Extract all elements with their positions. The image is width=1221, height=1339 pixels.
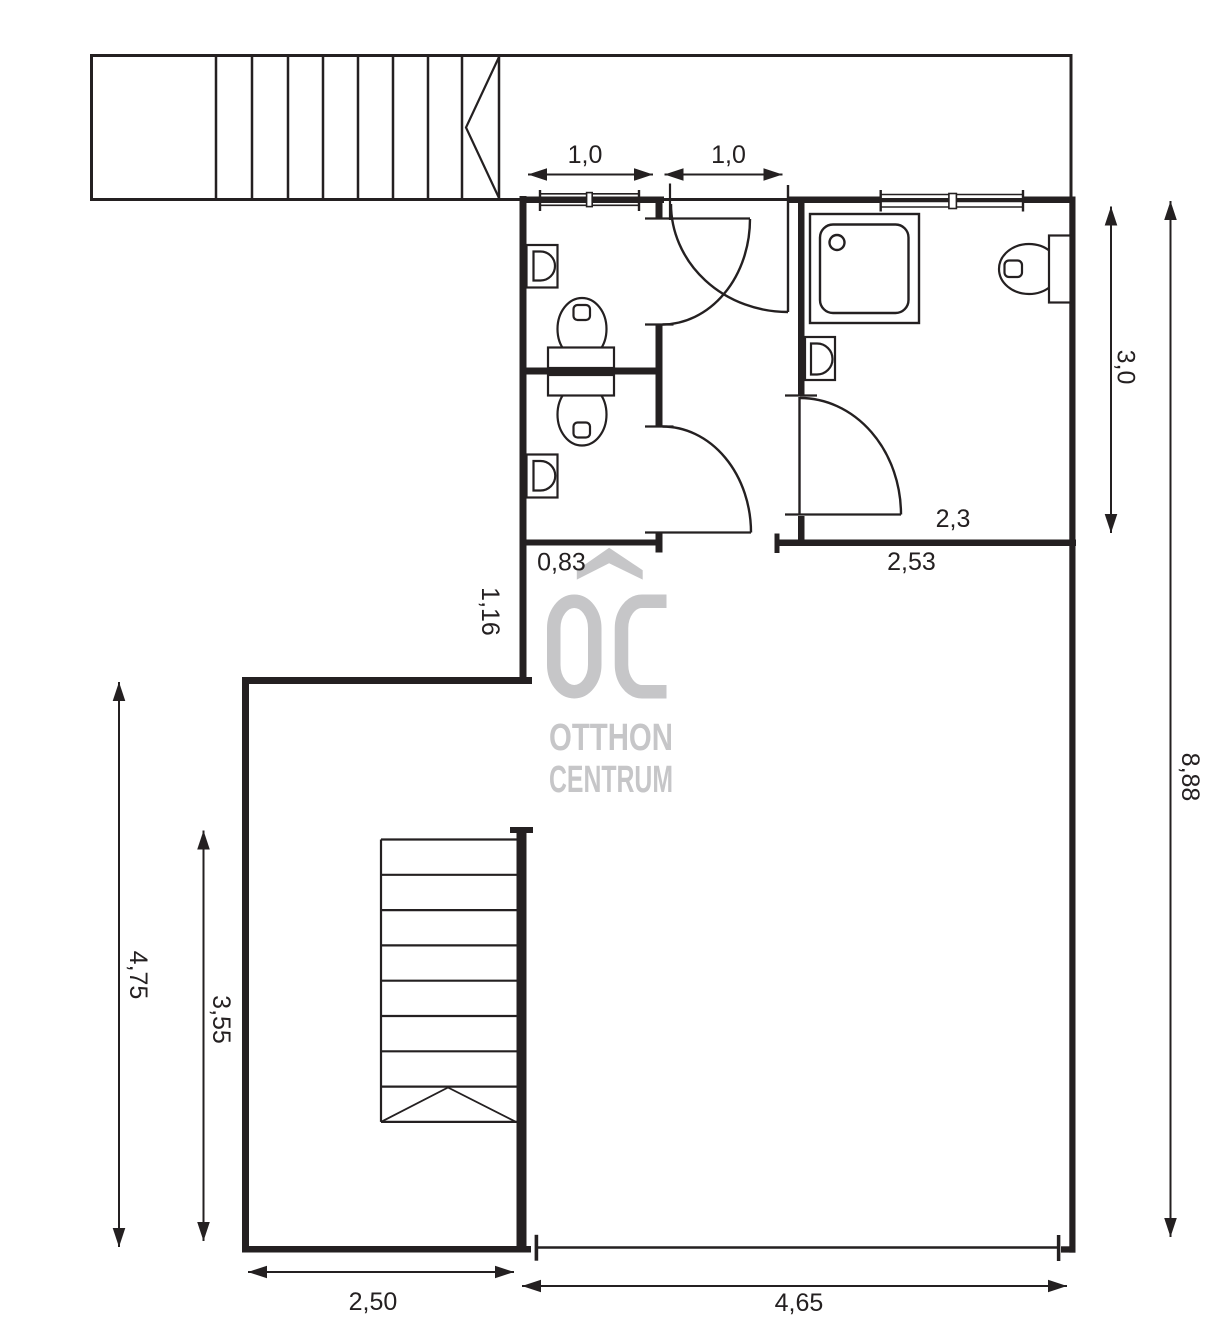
svg-text:1,0: 1,0 [711, 141, 746, 169]
svg-text:1,0: 1,0 [568, 141, 603, 169]
svg-text:2,50: 2,50 [349, 1288, 398, 1316]
svg-text:4,75: 4,75 [124, 951, 152, 1000]
svg-text:CENTRUM: CENTRUM [549, 759, 673, 801]
svg-text:OTTHON: OTTHON [549, 717, 673, 759]
svg-text:2,53: 2,53 [887, 548, 936, 576]
svg-text:1,16: 1,16 [476, 587, 504, 636]
svg-text:3,0: 3,0 [1112, 350, 1140, 385]
svg-text:0,83: 0,83 [537, 549, 586, 577]
svg-text:4,65: 4,65 [775, 1289, 824, 1317]
svg-text:2,3: 2,3 [936, 505, 971, 533]
svg-text:3,55: 3,55 [207, 995, 235, 1044]
svg-text:8,88: 8,88 [1176, 753, 1204, 802]
